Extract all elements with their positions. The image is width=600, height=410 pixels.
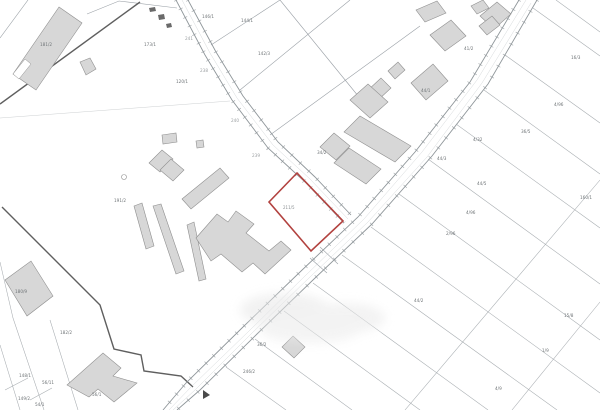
parcel-label: 241: [185, 36, 193, 41]
parcel-label: 142/3: [258, 51, 270, 56]
small-structure: [158, 14, 165, 20]
parcel-label: 36/2: [257, 342, 267, 347]
highlighted-parcel-label: 211/5: [283, 205, 295, 210]
parcel-label: 181/2: [40, 42, 52, 47]
parcel-label: 16/3: [571, 55, 581, 60]
parcel-label: 238: [200, 68, 208, 73]
parcel-label: 120/1: [176, 79, 188, 84]
parcel-label: 41/2: [464, 46, 474, 51]
parcel-label: 4/96: [554, 102, 564, 107]
parcel-label: 180/9: [15, 289, 27, 294]
cadastral-map-canvas: 211/5 181/2 173/1 146/1 144/1 142/3 120/…: [0, 0, 600, 410]
building: [162, 133, 177, 144]
parcel-label: 148/1: [19, 373, 31, 378]
watermark-blob: [260, 317, 360, 343]
cadastral-map-svg: 211/5 181/2 173/1 146/1 144/1 142/3 120/…: [0, 0, 600, 410]
parcel-label: 2/96: [446, 231, 456, 236]
parcel-label: 56/1: [92, 392, 102, 397]
parcel-label: 4/96: [466, 210, 476, 215]
building: [196, 140, 204, 148]
parcel-label: 246/2: [243, 369, 255, 374]
parcel-label: 146/1: [202, 14, 214, 19]
parcel-label: 240: [231, 118, 239, 123]
parcel-label: 44/3: [437, 156, 447, 161]
parcel-label: 44/5: [477, 181, 487, 186]
parcel-label: 4/32: [473, 137, 483, 142]
parcel-label: 56/11: [42, 380, 54, 385]
parcel-label: 173/1: [144, 42, 156, 47]
parcel-label: 44/2: [414, 298, 424, 303]
parcel-label: 239: [252, 153, 260, 158]
parcel-label: 15/8: [564, 313, 574, 318]
parcel-label: 44/1: [421, 88, 431, 93]
parcel-label: 54/1: [35, 402, 45, 407]
parcel-label: 36/5: [521, 129, 531, 134]
parcel-label: 182/2: [60, 330, 72, 335]
parcel-label: 144/1: [241, 18, 253, 23]
parcel-label: 160/1: [580, 195, 592, 200]
parcel-label: 191/2: [114, 198, 126, 203]
parcel-label: 34/2: [317, 150, 327, 155]
parcel-label: 1/9: [542, 348, 549, 353]
parcel-label: 149/2: [18, 396, 30, 401]
parcel-label: 4/9: [495, 386, 502, 391]
